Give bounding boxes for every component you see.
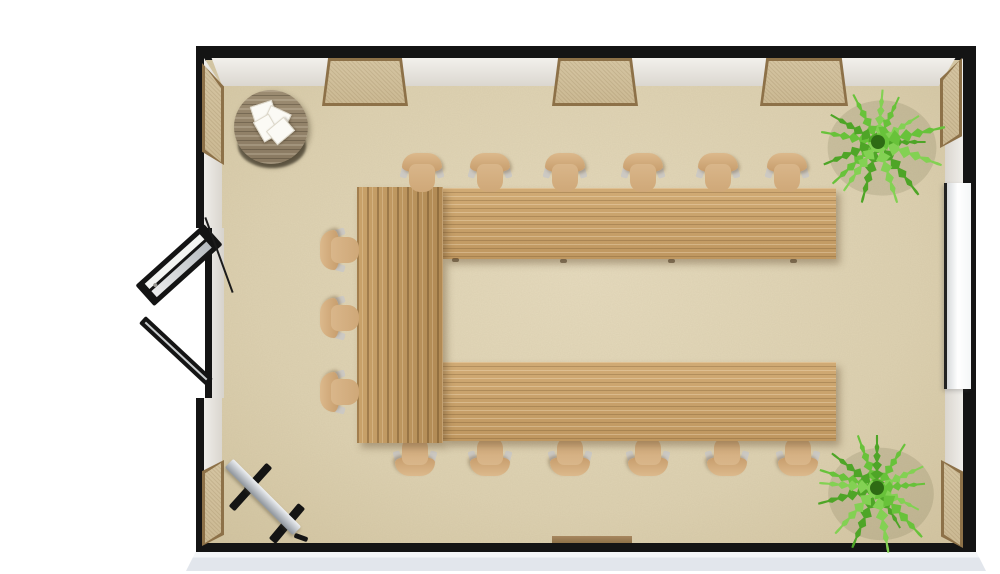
potted-palm-plant[interactable] <box>800 64 956 220</box>
window-left-2[interactable] <box>202 460 224 546</box>
window-top-1[interactable] <box>322 58 408 106</box>
chair-seat <box>331 379 359 405</box>
chair-seat <box>477 164 503 192</box>
table-leg <box>452 258 459 262</box>
chair-seat <box>557 437 583 465</box>
floorplan-canvas <box>0 0 1000 574</box>
chair-seat <box>409 164 435 192</box>
potted-palm-plant[interactable] <box>801 412 953 564</box>
chair-seat <box>705 164 731 192</box>
window-top-2-pane <box>555 61 635 103</box>
u-table-left-segment[interactable] <box>357 187 443 443</box>
chair-seat <box>774 164 800 192</box>
u-table-top-segment[interactable] <box>443 188 836 259</box>
chair-seat <box>331 237 359 263</box>
window-left-2-pane <box>205 463 221 543</box>
chair[interactable] <box>621 150 665 196</box>
table-leg <box>790 259 797 263</box>
chair-seat <box>331 305 359 331</box>
chair-seat <box>477 437 503 465</box>
chair[interactable] <box>317 370 363 414</box>
u-table-bottom-segment[interactable] <box>443 362 836 441</box>
chair[interactable] <box>468 150 512 196</box>
chair[interactable] <box>543 150 587 196</box>
chair[interactable] <box>696 150 740 196</box>
window-sill-bottom-wall[interactable] <box>552 536 632 543</box>
table-leg <box>668 259 675 263</box>
chair-seat <box>630 164 656 192</box>
chair-seat <box>714 437 740 465</box>
chair-seat <box>635 437 661 465</box>
window-top-1-pane <box>325 61 405 103</box>
window-top-2[interactable] <box>552 58 638 106</box>
chair[interactable] <box>317 228 363 272</box>
table-leg <box>560 259 567 263</box>
chair-seat <box>552 164 578 192</box>
chair[interactable] <box>400 150 444 196</box>
chair[interactable] <box>317 296 363 340</box>
